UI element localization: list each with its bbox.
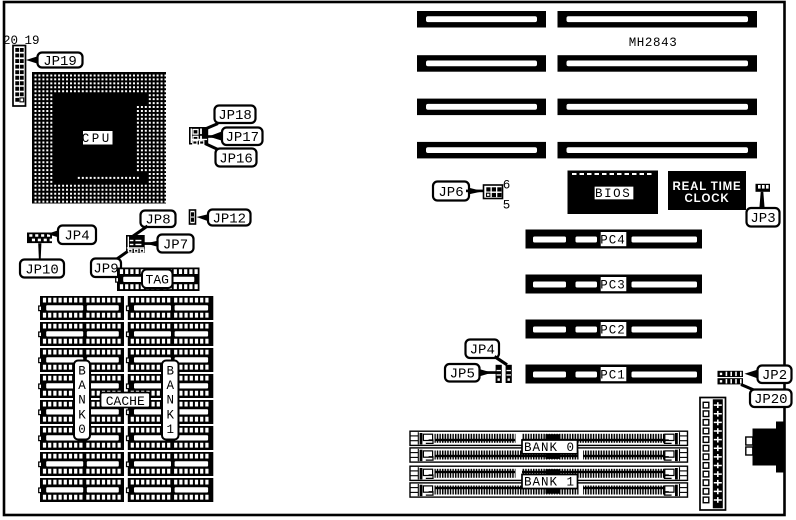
svg-text:0: 0 [78, 423, 86, 437]
svg-text:BANK 0: BANK 0 [524, 441, 575, 455]
svg-text:PC3: PC3 [600, 279, 626, 293]
svg-text:JP3: JP3 [750, 211, 775, 227]
svg-text:N: N [167, 394, 175, 408]
svg-text:CACHE: CACHE [106, 394, 145, 409]
svg-text:19: 19 [24, 34, 39, 48]
svg-text:MH2843: MH2843 [629, 36, 678, 50]
svg-text:JP20: JP20 [754, 392, 788, 408]
svg-text:JP9: JP9 [93, 262, 118, 278]
svg-text:JP7: JP7 [163, 237, 188, 253]
svg-text:K: K [78, 408, 86, 422]
svg-text:JP6: JP6 [438, 185, 463, 201]
svg-text:JP4: JP4 [470, 343, 495, 359]
svg-text:PC4: PC4 [600, 234, 626, 248]
svg-text:6: 6 [503, 179, 511, 193]
svg-text:JP19: JP19 [43, 54, 77, 70]
svg-text:JP5: JP5 [450, 367, 475, 383]
svg-text:A: A [167, 379, 175, 393]
svg-text:K: K [167, 408, 175, 422]
svg-text:B: B [167, 365, 175, 379]
svg-text:N: N [78, 394, 86, 408]
svg-text:5: 5 [503, 199, 511, 213]
svg-text:JP10: JP10 [25, 262, 59, 278]
svg-text:JP18: JP18 [218, 108, 252, 124]
svg-text:JP8: JP8 [145, 213, 170, 229]
svg-text:B: B [78, 365, 86, 379]
svg-text:1: 1 [167, 423, 175, 437]
svg-text:PC1: PC1 [600, 369, 626, 383]
svg-text:PC2: PC2 [600, 324, 626, 338]
svg-text:JP17: JP17 [225, 130, 259, 146]
svg-text:JP4: JP4 [64, 229, 89, 245]
svg-text:CLOCK: CLOCK [685, 193, 730, 205]
svg-text:CPU: CPU [82, 132, 112, 146]
svg-text:JP12: JP12 [212, 211, 246, 227]
svg-text:BANK 1: BANK 1 [524, 476, 575, 490]
svg-text:A: A [78, 379, 86, 393]
svg-text:JP16: JP16 [219, 151, 253, 167]
svg-text:JP2: JP2 [762, 368, 787, 384]
svg-text:TAG: TAG [146, 273, 169, 288]
svg-text:BIOS: BIOS [595, 187, 631, 201]
svg-text:REAL TIME: REAL TIME [673, 181, 742, 193]
